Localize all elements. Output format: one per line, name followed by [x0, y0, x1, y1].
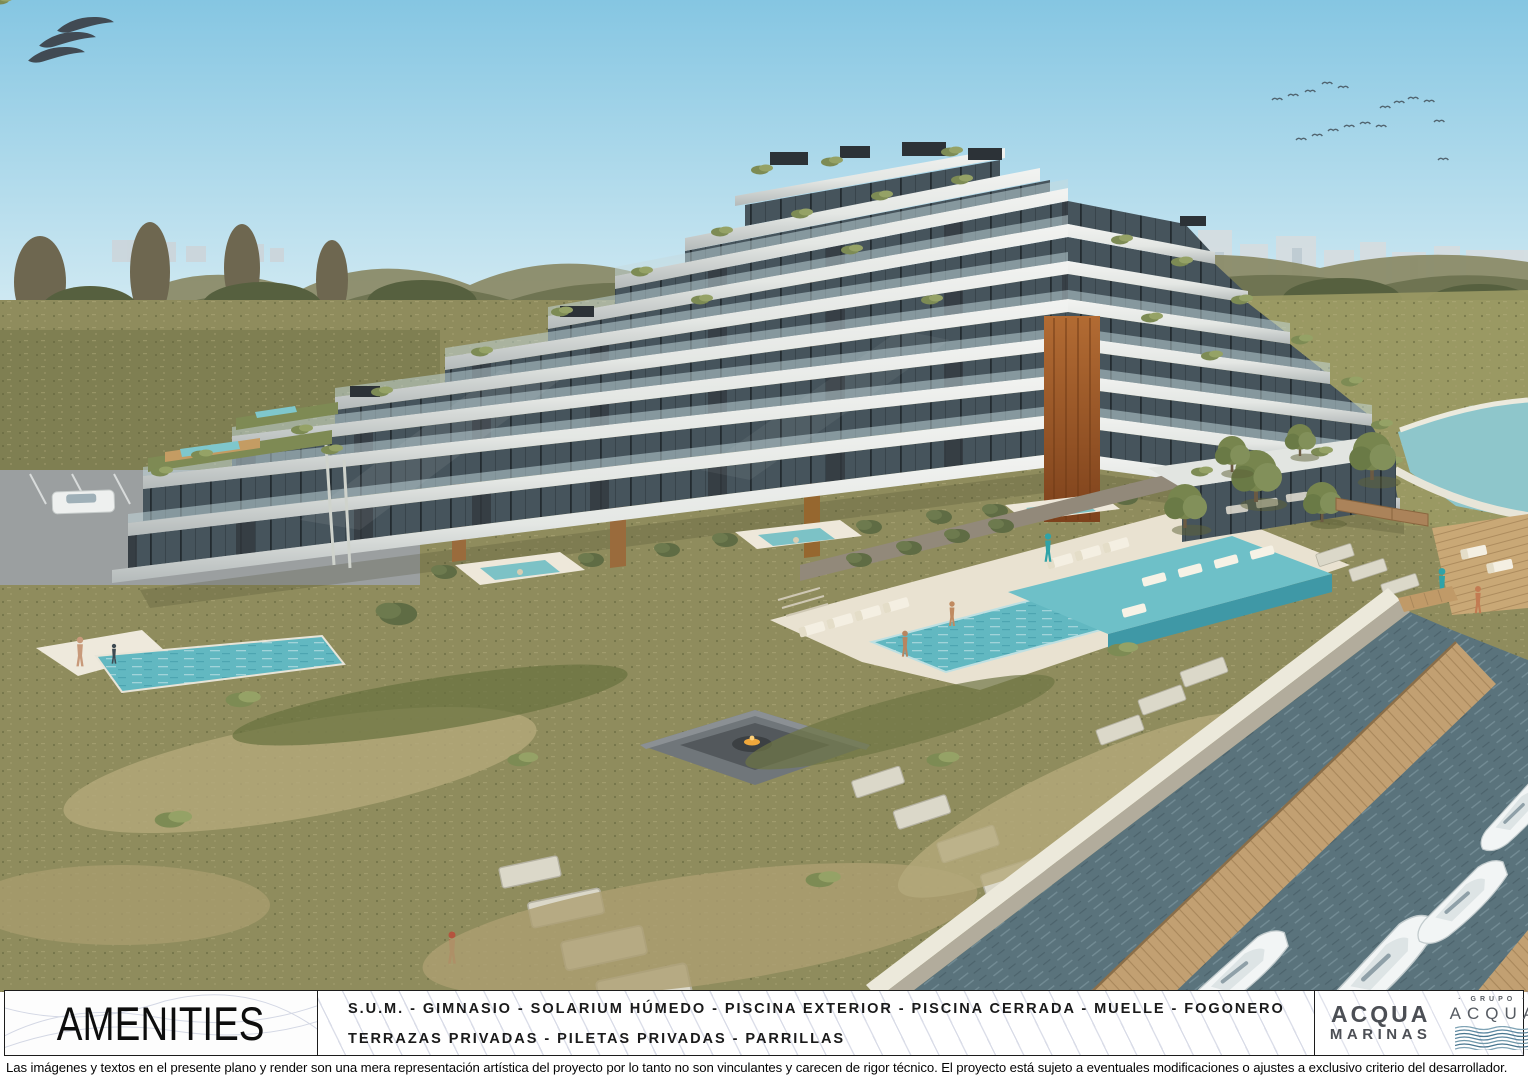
white-car: [52, 490, 115, 514]
amenities-line-1: S.U.M. - GIMNASIO - SOLARIUM HÚMEDO - PI…: [348, 1000, 1285, 1017]
grupo-acqua-logo: · GRUPO · ACQUA: [1447, 996, 1528, 1050]
corten-tower: [1044, 316, 1100, 522]
amenities-line-2: TERRAZAS PRIVADAS - PILETAS PRIVADAS - P…: [348, 1030, 1285, 1047]
amenities-list: S.U.M. - GIMNASIO - SOLARIUM HÚMEDO - PI…: [318, 991, 1314, 1055]
grupo-acqua-waves-icon: [1455, 1026, 1528, 1050]
amenities-bar: AMENITIES S.U.M. - GIMNASIO - SOLARIUM H…: [4, 990, 1524, 1056]
grupo-label: · GRUPO ·: [1447, 996, 1528, 1003]
acqua-marinas-logo: ACQUA MARINAS: [1330, 1003, 1432, 1043]
acqua-marinas-line1: ACQUA: [1330, 1003, 1432, 1026]
brochure-plate: AMENITIES S.U.M. - GIMNASIO - SOLARIUM H…: [0, 0, 1528, 1079]
amenities-title-box: AMENITIES: [5, 991, 318, 1055]
amenities-title: AMENITIES: [57, 996, 265, 1051]
grupo-acqua-name: ACQUA: [1450, 1003, 1528, 1024]
acqua-marinas-line2: MARINAS: [1330, 1026, 1432, 1043]
disclaimer: Las imágenes y textos en el presente pla…: [6, 1058, 1522, 1078]
render-scene: [0, 0, 1528, 992]
logos-panel: ACQUA MARINAS · GRUPO · ACQUA ESP ARQUIT…: [1314, 991, 1528, 1055]
